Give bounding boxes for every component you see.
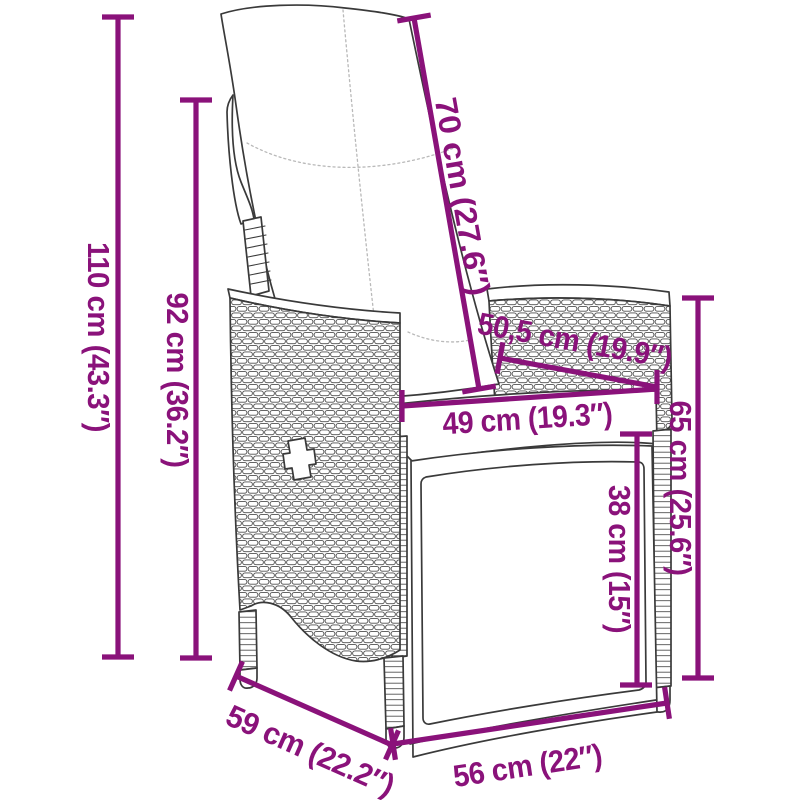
label-armrest-height: 65 cm (25.6″) [663,401,698,576]
label-seat-height: 38 cm (15″) [602,485,637,633]
diagram-svg: 110 cm (43.3″) 92 cm (36.2″) 70 cm (27.6… [0,0,800,800]
label-back-height: 92 cm (36.2″) [160,293,195,468]
chair-leg-back-left [239,610,257,670]
dimension-diagram: 110 cm (43.3″) 92 cm (36.2″) 70 cm (27.6… [0,0,800,800]
label-total-height: 110 cm (43.3″) [81,242,116,432]
chair-side-panel-left [230,298,400,662]
label-base-depth: 59 cm (22.2″) [221,698,400,800]
chair-leg-front-left [384,656,404,729]
label-base-width: 56 cm (22″) [451,737,605,794]
